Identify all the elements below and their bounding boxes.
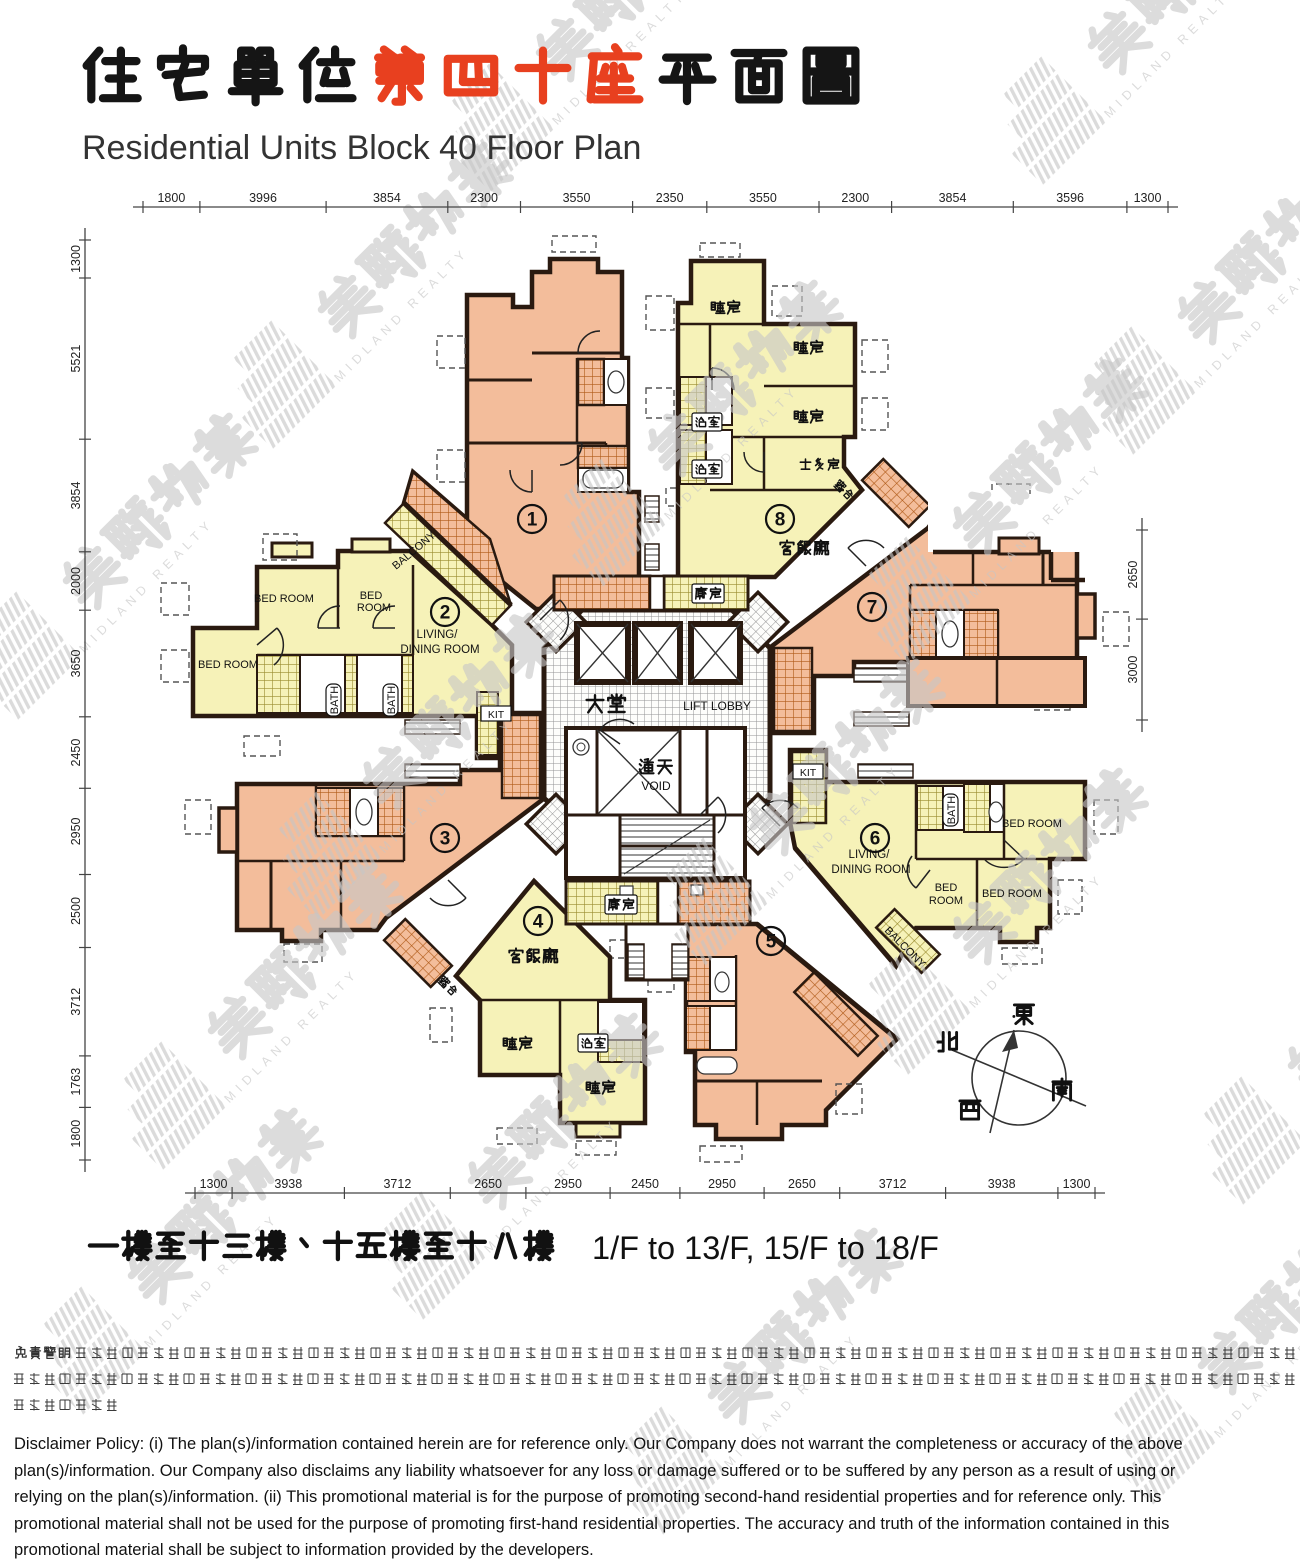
svg-text:1763: 1763 <box>69 1068 83 1096</box>
svg-text:3000: 3000 <box>1126 656 1140 684</box>
svg-text:VOID: VOID <box>641 779 671 793</box>
svg-text:3550: 3550 <box>563 191 591 205</box>
svg-text:7: 7 <box>867 598 878 619</box>
svg-text:2650: 2650 <box>474 1177 502 1191</box>
svg-text:3712: 3712 <box>879 1177 907 1191</box>
svg-text:promotional material shall not: promotional material shall not be used f… <box>14 1515 1169 1533</box>
svg-text:LIVING/: LIVING/ <box>417 629 459 641</box>
svg-text:3650: 3650 <box>69 650 83 678</box>
svg-text:BED ROOM: BED ROOM <box>198 659 258 671</box>
svg-text:3: 3 <box>440 829 451 850</box>
svg-text:2950: 2950 <box>708 1177 736 1191</box>
svg-text:3854: 3854 <box>939 191 967 205</box>
svg-text:DINING ROOM: DINING ROOM <box>400 644 479 656</box>
svg-text:relying on the plan(s)/informa: relying on the plan(s)/information. (ii)… <box>14 1488 1161 1506</box>
svg-text:BED: BED <box>935 882 958 894</box>
svg-text:BATH: BATH <box>329 686 341 715</box>
svg-text:BED ROOM: BED ROOM <box>982 888 1042 900</box>
svg-text:2: 2 <box>440 603 451 624</box>
svg-text:3854: 3854 <box>69 482 83 510</box>
svg-text:2450: 2450 <box>631 1177 659 1191</box>
svg-text:2650: 2650 <box>788 1177 816 1191</box>
svg-text:3596: 3596 <box>1056 191 1084 205</box>
svg-text:2450: 2450 <box>69 739 83 767</box>
svg-text:1300: 1300 <box>1063 1177 1091 1191</box>
svg-text:1800: 1800 <box>157 191 185 205</box>
svg-text:1300: 1300 <box>69 245 83 273</box>
svg-text:2650: 2650 <box>1126 561 1140 589</box>
svg-text:DINING ROOM: DINING ROOM <box>831 864 910 876</box>
svg-text:2950: 2950 <box>554 1177 582 1191</box>
svg-text:1/F to 13/F, 15/F to 18/F: 1/F to 13/F, 15/F to 18/F <box>592 1230 939 1266</box>
svg-text:Disclaimer Policy: (i) The pla: Disclaimer Policy: (i) The plan(s)/infor… <box>14 1435 1183 1453</box>
svg-text:1800: 1800 <box>69 1120 83 1148</box>
svg-text:Residential Units Block 40 Flo: Residential Units Block 40 Floor Plan <box>82 129 641 167</box>
svg-text:2000: 2000 <box>69 567 83 595</box>
svg-text:1300: 1300 <box>200 1177 228 1191</box>
svg-text:LIFT LOBBY: LIFT LOBBY <box>683 699 751 713</box>
svg-text:BED: BED <box>360 590 383 602</box>
svg-text:1300: 1300 <box>1134 191 1162 205</box>
svg-text:LIVING/: LIVING/ <box>849 849 891 861</box>
svg-text:KIT: KIT <box>800 767 817 779</box>
svg-text:ROOM: ROOM <box>929 895 963 907</box>
svg-text:3712: 3712 <box>383 1177 411 1191</box>
svg-text:2300: 2300 <box>470 191 498 205</box>
svg-text:1: 1 <box>527 510 538 531</box>
svg-text:5521: 5521 <box>69 345 83 373</box>
svg-text:BED ROOM: BED ROOM <box>1002 818 1062 830</box>
svg-text:2500: 2500 <box>69 897 83 925</box>
svg-text:BATH: BATH <box>386 686 398 715</box>
svg-text:3550: 3550 <box>749 191 777 205</box>
svg-text:2950: 2950 <box>69 817 83 845</box>
svg-text:promotional material shall be: promotional material shall be subject to… <box>14 1541 594 1559</box>
svg-text:2300: 2300 <box>841 191 869 205</box>
svg-text:4: 4 <box>533 912 544 933</box>
svg-text:2350: 2350 <box>656 191 684 205</box>
svg-text:3996: 3996 <box>249 191 277 205</box>
svg-text:6: 6 <box>870 829 881 850</box>
svg-text:3938: 3938 <box>988 1177 1016 1191</box>
svg-text:BATH: BATH <box>946 796 958 825</box>
svg-text:3712: 3712 <box>69 988 83 1016</box>
svg-text:8: 8 <box>775 510 786 531</box>
svg-text:KIT: KIT <box>488 709 505 721</box>
svg-text:ROOM: ROOM <box>357 602 391 614</box>
svg-text:5: 5 <box>766 932 777 953</box>
svg-text:plan(s)/information. Our Compa: plan(s)/information. Our Company also di… <box>14 1462 1176 1480</box>
svg-text:3854: 3854 <box>373 191 401 205</box>
svg-text:3938: 3938 <box>274 1177 302 1191</box>
svg-text:BED ROOM: BED ROOM <box>254 593 314 605</box>
